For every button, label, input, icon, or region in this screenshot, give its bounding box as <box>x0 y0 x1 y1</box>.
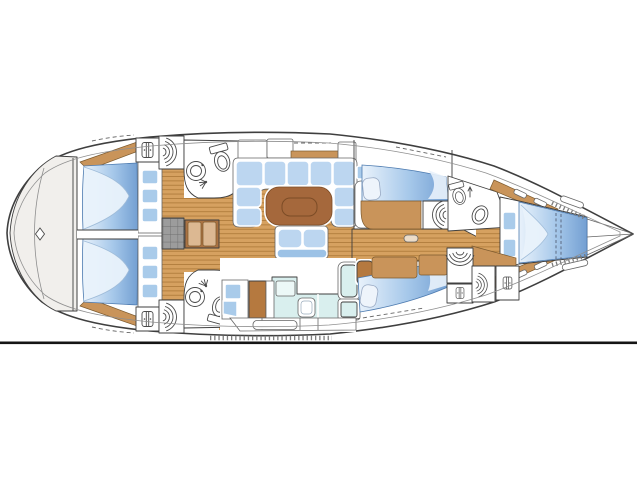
shelf-door <box>503 239 516 257</box>
pillow <box>362 177 381 201</box>
engine-box <box>162 218 184 249</box>
galley-locker <box>249 281 266 318</box>
wardrobe-icon <box>142 312 153 327</box>
salon-table <box>266 187 332 225</box>
wardrobe-icon <box>142 143 153 158</box>
baseline-rule <box>0 342 637 345</box>
salon-bench <box>275 226 328 259</box>
centerline-divider <box>77 230 138 239</box>
stove <box>276 281 295 296</box>
yacht-floor-plan-image <box>0 0 637 477</box>
wardrobe-icon <box>503 277 512 289</box>
wardrobe-icon <box>456 288 464 299</box>
corridor-hatch-handle <box>404 235 418 242</box>
companionway <box>162 218 219 249</box>
aft-head-top <box>184 140 240 198</box>
sink-icon <box>186 288 205 307</box>
deck-plan-svg <box>0 0 637 477</box>
sink-icon <box>187 162 206 181</box>
shelf-door <box>503 212 516 230</box>
fridge <box>341 265 357 297</box>
